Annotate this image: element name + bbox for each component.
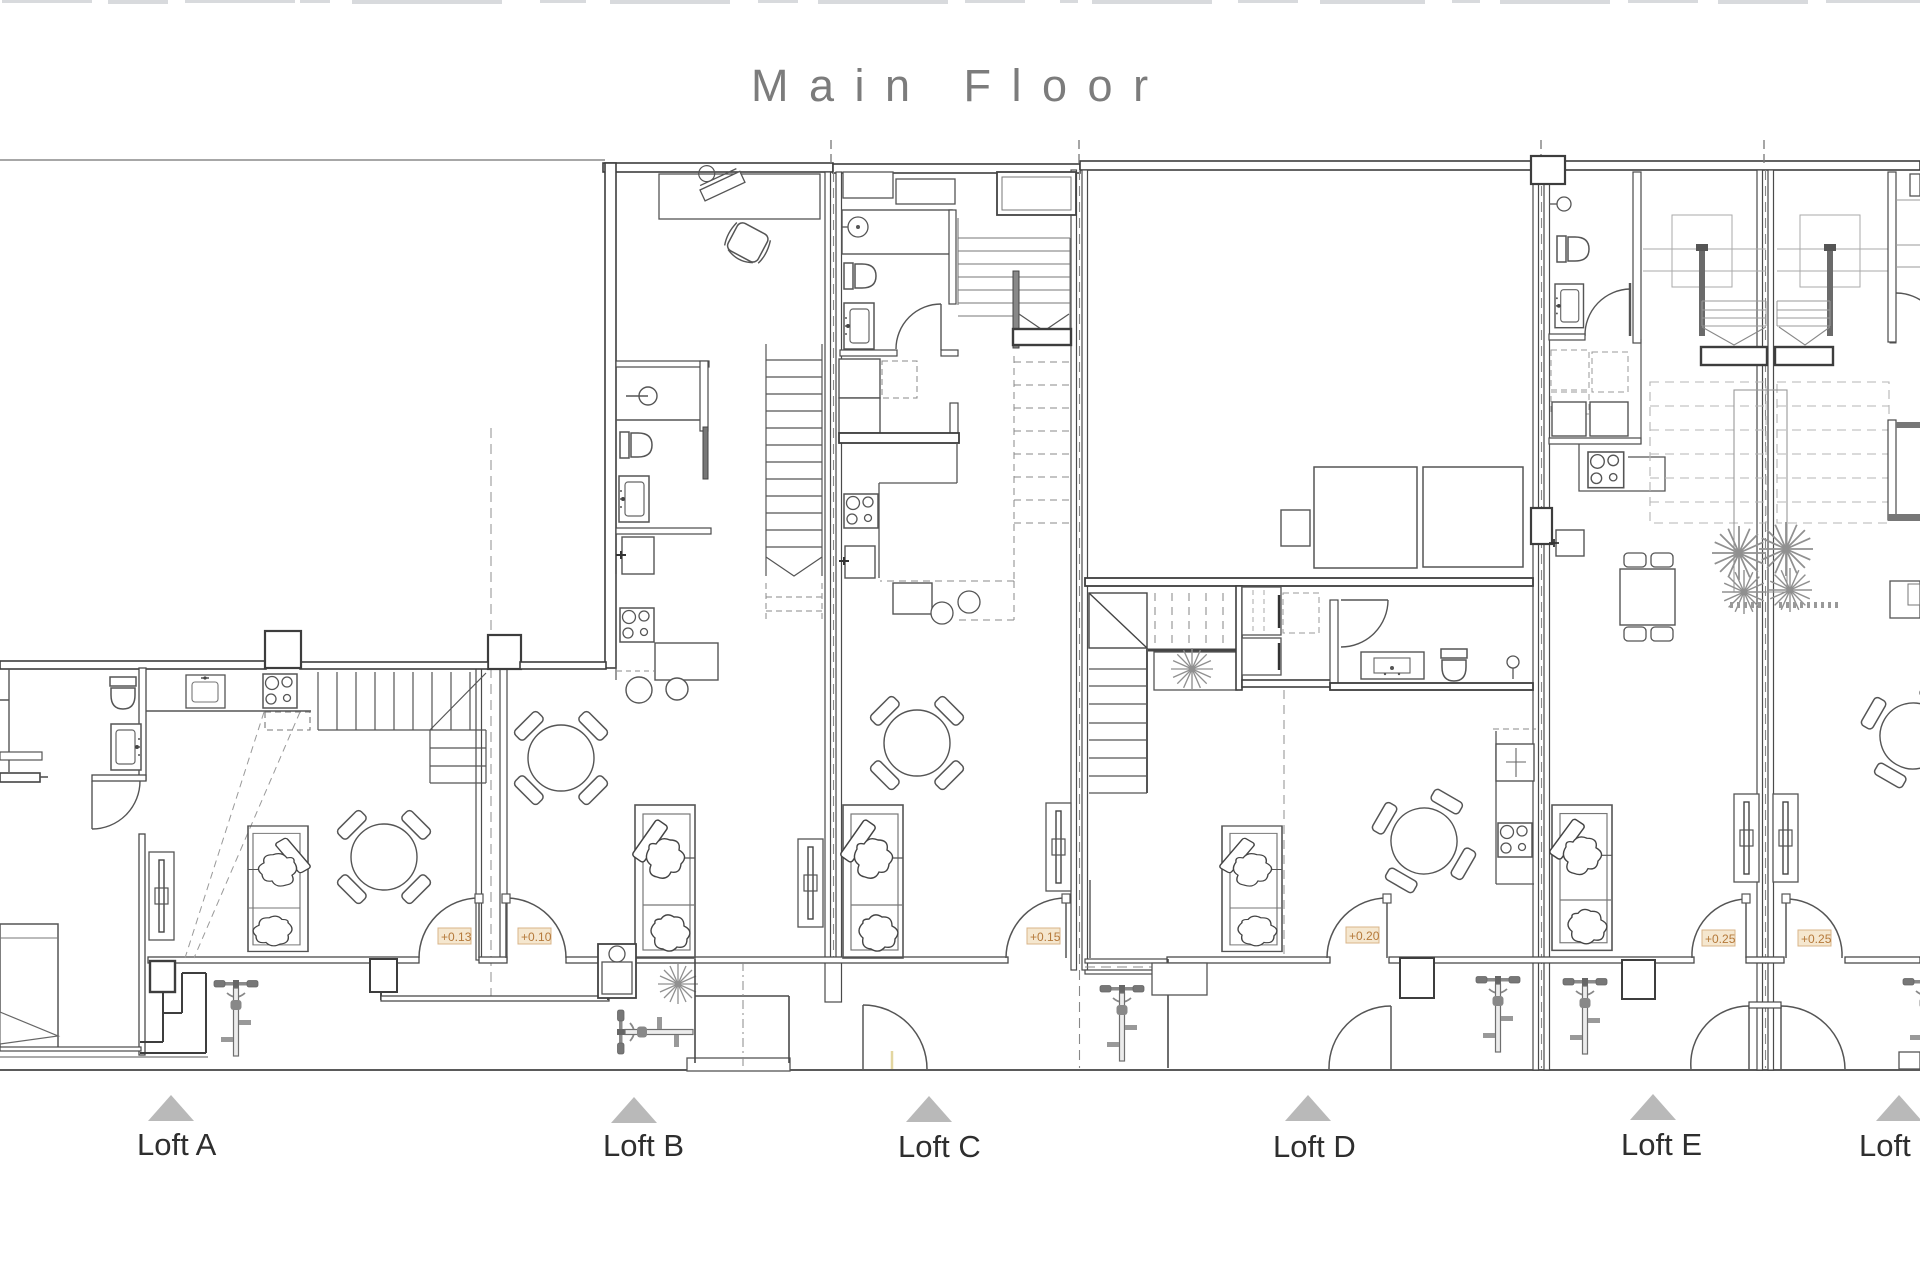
svg-text:+0.25: +0.25 [1705,932,1736,946]
svg-text:Loft B: Loft B [603,1128,684,1163]
svg-text:Loft F: Loft F [1859,1128,1920,1163]
svg-text:Loft A: Loft A [137,1127,217,1162]
svg-text:Loft E: Loft E [1621,1127,1702,1162]
svg-text:+0.25: +0.25 [1801,932,1832,946]
svg-text:+0.10: +0.10 [521,930,552,944]
svg-text:Main Floor: Main Floor [751,60,1169,111]
svg-text:Loft D: Loft D [1273,1129,1356,1164]
svg-text:+0.15: +0.15 [1030,930,1061,944]
svg-text:+0.13: +0.13 [441,930,472,944]
svg-text:+0.20: +0.20 [1349,929,1380,943]
svg-text:Loft C: Loft C [898,1129,981,1164]
